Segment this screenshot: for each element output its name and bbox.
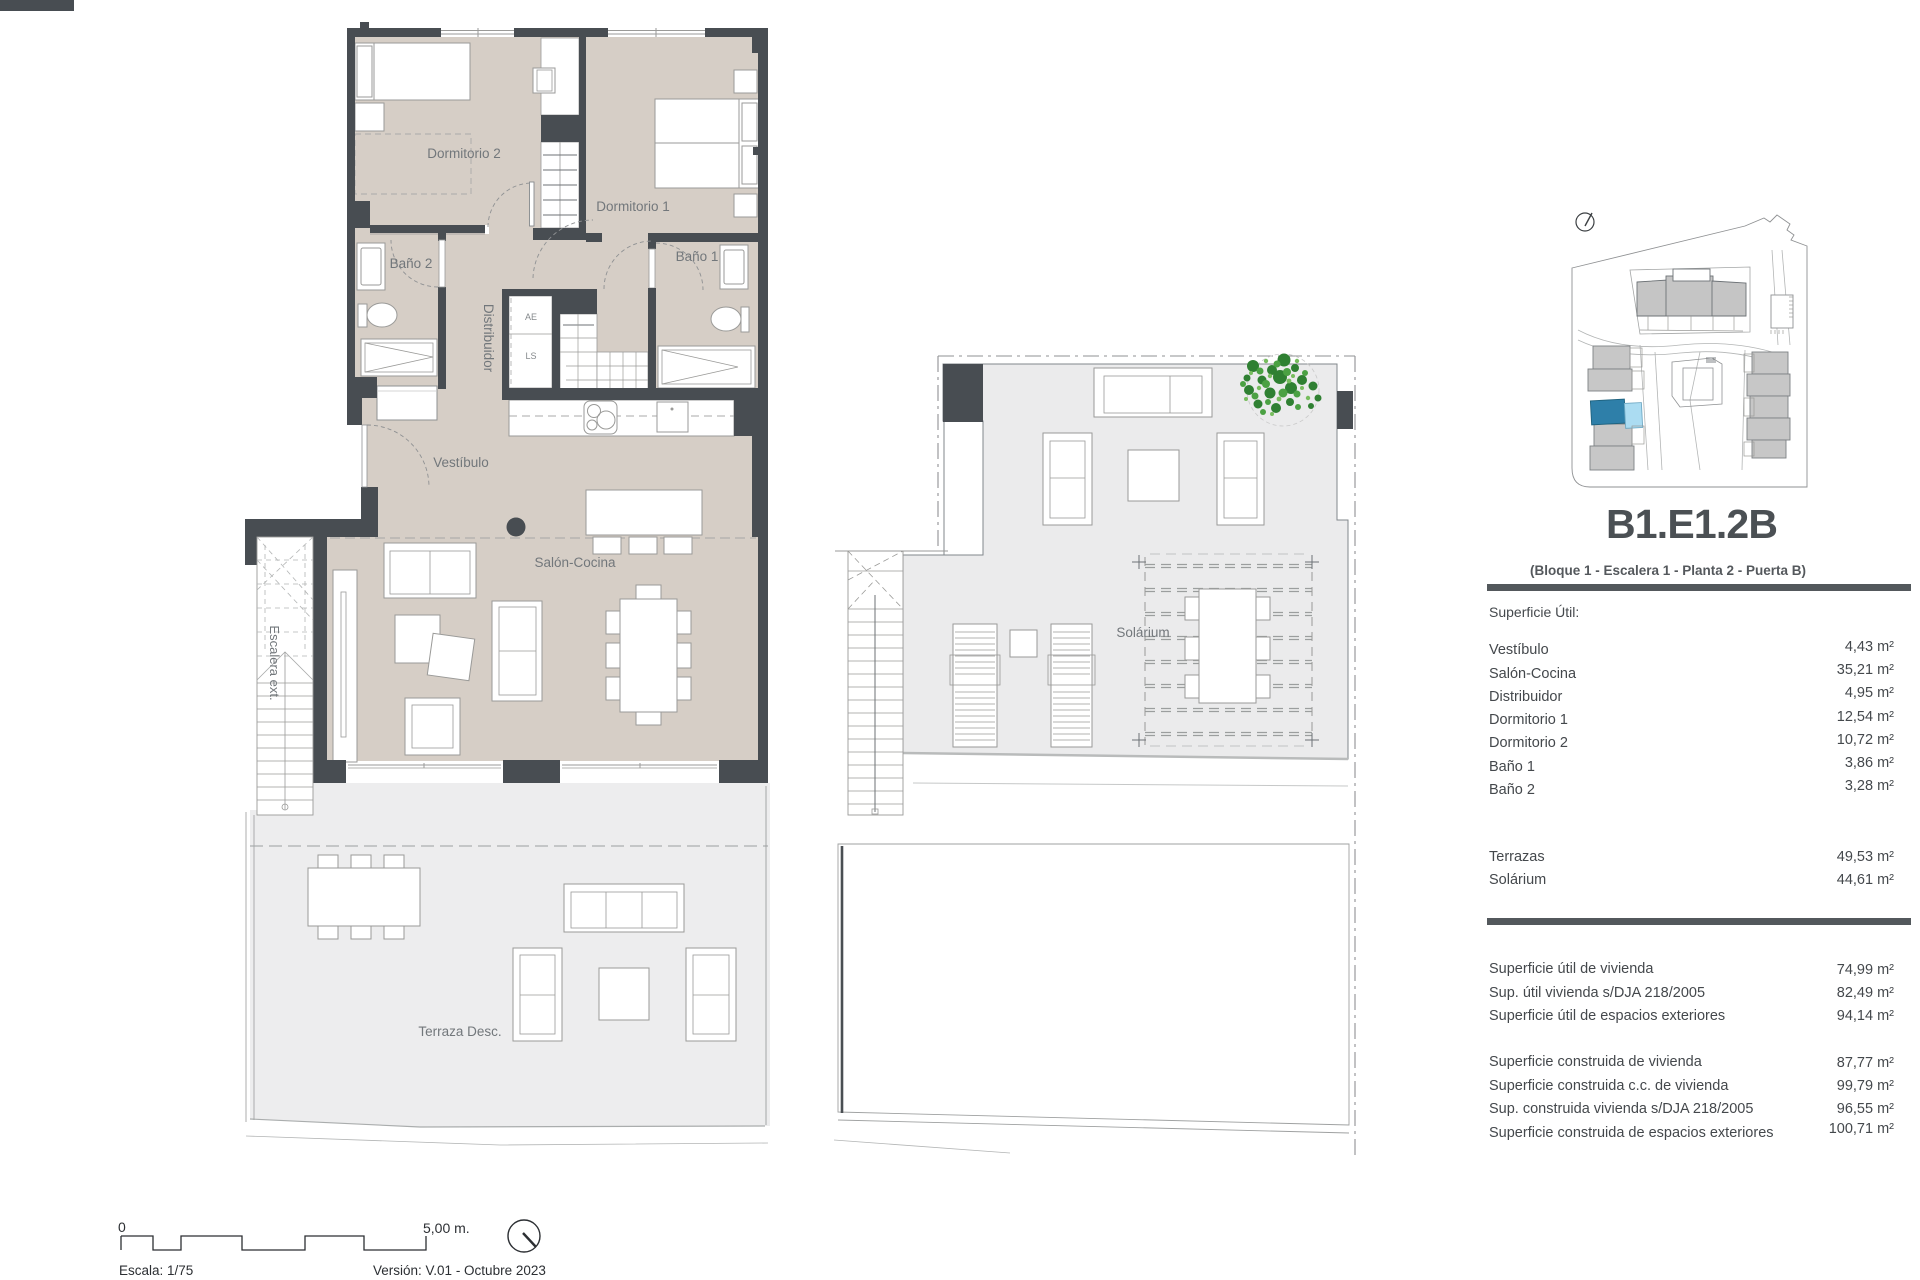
svg-text:Superficie construida de vivie: Superficie construida de vivienda — [1489, 1054, 1703, 1070]
svg-text:B1.E1.2B: B1.E1.2B — [1606, 501, 1778, 547]
svg-text:0: 0 — [118, 1219, 126, 1235]
svg-text:Solárium: Solárium — [1489, 872, 1546, 888]
svg-text:87,77 m²: 87,77 m² — [1837, 1055, 1894, 1071]
svg-text:Escala: 1/75: Escala: 1/75 — [119, 1263, 193, 1278]
svg-text:Dormitorio 1: Dormitorio 1 — [596, 199, 670, 214]
svg-text:Salón-Cocina: Salón-Cocina — [534, 555, 616, 570]
svg-text:Salón-Cocina: Salón-Cocina — [1489, 666, 1577, 682]
svg-text:Sup. construida vivienda s/DJA: Sup. construida vivienda s/DJA 218/2005 — [1489, 1101, 1753, 1117]
svg-text:100,71 m²: 100,71 m² — [1829, 1121, 1894, 1137]
svg-text:12,54 m²: 12,54 m² — [1837, 709, 1894, 725]
svg-text:Vestíbulo: Vestíbulo — [433, 455, 489, 470]
svg-text:74,99 m²: 74,99 m² — [1837, 962, 1894, 978]
svg-text:3,28 m²: 3,28 m² — [1845, 778, 1894, 794]
svg-text:LS: LS — [525, 351, 536, 361]
svg-text:Distribuidor: Distribuidor — [481, 304, 496, 373]
svg-text:44,61 m²: 44,61 m² — [1837, 872, 1894, 888]
svg-text:35,21 m²: 35,21 m² — [1837, 662, 1894, 678]
svg-text:Terrazas: Terrazas — [1489, 849, 1545, 865]
svg-text:Baño 2: Baño 2 — [390, 256, 433, 271]
svg-text:Distribuidor: Distribuidor — [1489, 689, 1562, 705]
svg-text:49,53 m²: 49,53 m² — [1837, 849, 1894, 865]
svg-text:Superficie Útil:: Superficie Útil: — [1489, 604, 1579, 620]
svg-text:4,95 m²: 4,95 m² — [1845, 685, 1894, 701]
svg-text:Baño 1: Baño 1 — [676, 249, 719, 264]
svg-text:5,00 m.: 5,00 m. — [423, 1220, 470, 1236]
svg-text:Vestíbulo: Vestíbulo — [1489, 642, 1549, 658]
svg-text:Dormitorio 1: Dormitorio 1 — [1489, 712, 1568, 728]
svg-text:Terraza Desc.: Terraza Desc. — [418, 1024, 501, 1039]
svg-text:Solárium: Solárium — [1116, 625, 1169, 640]
svg-text:Versión: V.01 - Octubre 2023: Versión: V.01 - Octubre 2023 — [373, 1263, 546, 1278]
svg-text:Baño 2: Baño 2 — [1489, 782, 1535, 798]
svg-text:Superficie útil de vivienda: Superficie útil de vivienda — [1489, 961, 1654, 977]
svg-text:94,14 m²: 94,14 m² — [1837, 1008, 1894, 1024]
svg-text:Escalera ext.: Escalera ext. — [267, 625, 282, 700]
svg-text:Superficie útil de espacios ex: Superficie útil de espacios exteriores — [1489, 1008, 1725, 1024]
svg-text:10,72 m²: 10,72 m² — [1837, 732, 1894, 748]
svg-text:Dormitorio 2: Dormitorio 2 — [427, 146, 501, 161]
svg-text:99,79 m²: 99,79 m² — [1837, 1078, 1894, 1094]
svg-text:82,49 m²: 82,49 m² — [1837, 985, 1894, 1001]
svg-text:AE: AE — [525, 312, 537, 322]
svg-text:Baño 1: Baño 1 — [1489, 759, 1535, 775]
svg-text:Superficie construida c.c. de: Superficie construida c.c. de vivienda — [1489, 1078, 1729, 1094]
svg-text:Sup. útil vivienda s/DJA 218/2: Sup. útil vivienda s/DJA 218/2005 — [1489, 985, 1705, 1001]
svg-text:(Bloque 1 - Escalera 1 - Plant: (Bloque 1 - Escalera 1 - Planta 2 - Puer… — [1530, 563, 1806, 578]
svg-text:Dormitorio 2: Dormitorio 2 — [1489, 735, 1568, 751]
svg-text:Superficie construida de espac: Superficie construida de espacios exteri… — [1489, 1125, 1774, 1141]
svg-text:4,43 m²: 4,43 m² — [1845, 639, 1894, 655]
svg-text:3,86 m²: 3,86 m² — [1845, 755, 1894, 771]
svg-text:96,55 m²: 96,55 m² — [1837, 1101, 1894, 1117]
